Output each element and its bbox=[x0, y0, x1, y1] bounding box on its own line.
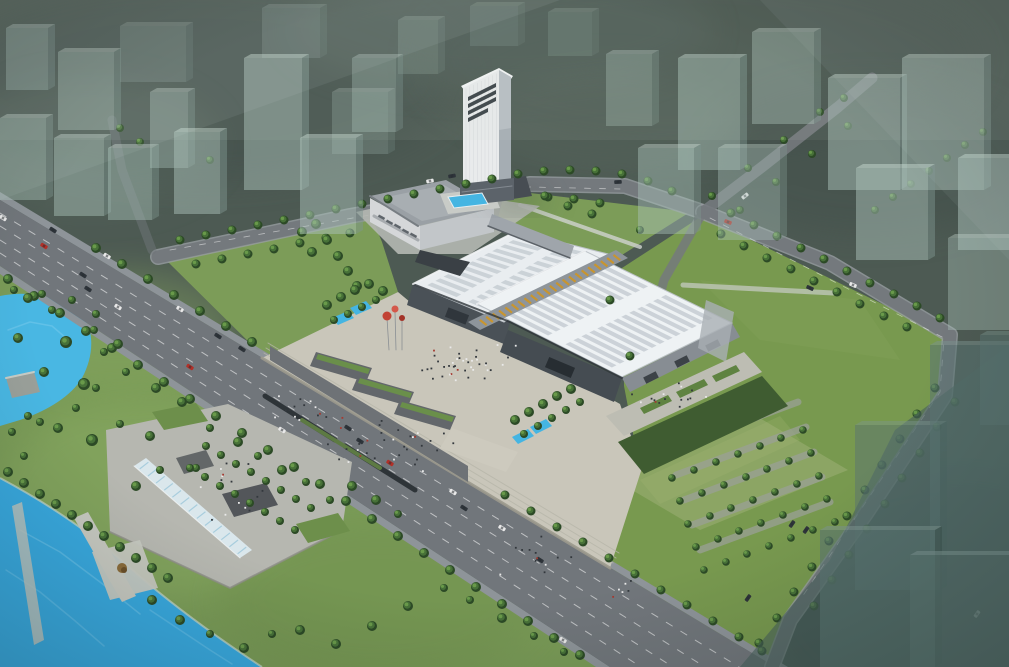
rendering-canvas bbox=[0, 0, 1009, 667]
architectural-rendering-stage: Aerial architectural rendering of exhibi… bbox=[0, 0, 1009, 667]
vignette-overlay bbox=[0, 0, 1009, 667]
